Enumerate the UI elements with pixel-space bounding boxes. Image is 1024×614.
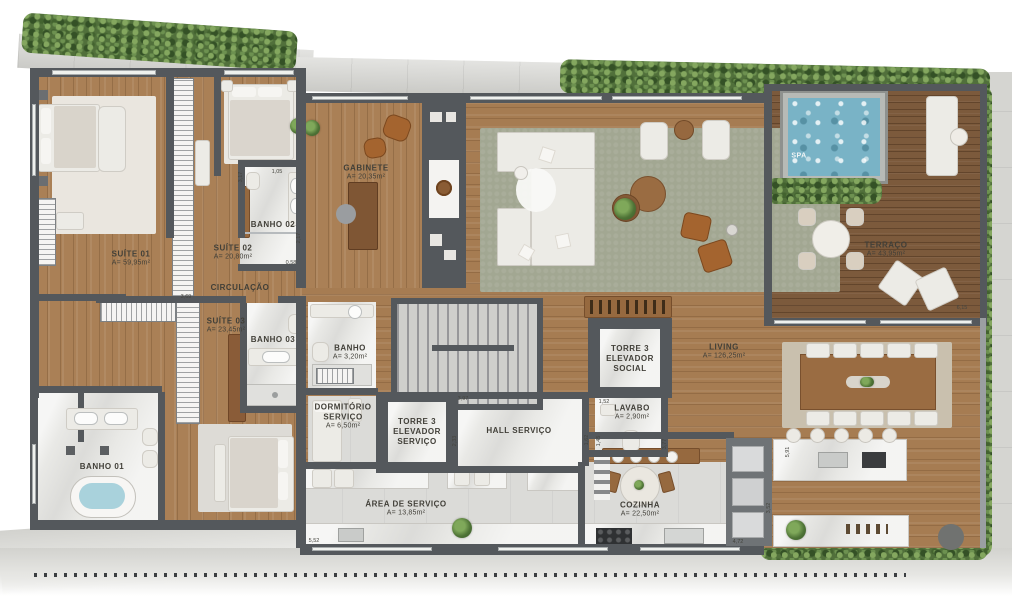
island-stool-4 [858,428,873,443]
island-stool-1 [786,428,801,443]
suite02-pillow-1 [232,87,256,97]
living-armchair-right [702,120,730,160]
washer-2 [334,469,354,488]
dining-chair-t5 [914,343,938,358]
suite01-pillow-2 [41,138,51,164]
suite02-bed-duvet [230,100,290,156]
wall-banho01-right [158,392,165,528]
dining-chair-t1 [806,343,830,358]
label-lavabo: LAVABO A= 2,90m² [614,404,650,423]
banho-servico-rack [316,368,354,384]
window-gabinete-top [312,96,408,100]
wall-suite03-top-2 [278,296,306,303]
dim-5-52: 5,52 [309,538,320,544]
label-area-servico: ÁREA DE SERVIÇO A= 13,85m² [365,500,446,519]
dining-chair-t4 [887,343,911,358]
living-leather-chair-1 [680,211,713,242]
dim-3-77: 3,77 [662,439,668,450]
closet-bench [195,140,210,186]
island-stool-2 [810,428,825,443]
fireplace-shelf-item-3 [430,234,442,246]
window-suite01-top [52,70,156,75]
railing-balusters [34,573,906,577]
appliance-wall [726,438,772,546]
suite01-bed-duvet [54,106,96,168]
bar-bottles [590,300,666,314]
window-bottom-2 [498,547,608,551]
wall-lavabo-bottom [588,450,668,457]
floor-plan: SUÍTE 01 A= 59,95m² SUÍTE 02 A= 20,80m² … [0,0,1024,614]
wall-terrace-top [764,84,986,91]
wall-suite01-closet [166,68,174,238]
counter-bottles [846,524,888,534]
spa-pool [780,90,888,184]
fireplace-shelf-item-2 [446,112,456,122]
label-gabinete: GABINETE A= 20,35m² [343,164,388,183]
servico-sink [338,528,364,542]
window-living-top-2 [612,96,742,100]
sidewalk-top-mid [295,57,581,97]
island-stool-3 [834,428,849,443]
banho01-basin-2 [104,412,128,425]
window-suite02-top [224,70,294,75]
room-area: A= 3,20m² [333,354,367,363]
room-name: DORMITÓRIO SERVIÇO [315,403,372,422]
dining-chair-b1 [806,411,830,426]
spa-water [788,98,880,176]
label-banho-servico: BANHO A= 3,20m² [333,344,367,363]
banho01-bidet [142,450,158,468]
label-cozinha: COZINHA A= 22,50m² [620,501,660,520]
room-name: BANHO [334,344,366,353]
terrace-chair-3 [798,252,816,270]
terrace-lounger-table [950,128,968,146]
living-floor-lamp [726,224,738,236]
dim-6-15: 6,15 [957,305,968,311]
room-area: A= 20,80m² [214,254,253,263]
dining-chair-b2 [833,411,857,426]
room-name: TORRE 3 ELEVADOR SERVIÇO [393,417,441,446]
room-name: CIRCULAÇÃO [211,283,270,292]
terrace-table [812,220,850,258]
appliance-panel-2 [732,478,764,506]
label-banho01: BANHO 01 [80,462,124,472]
room-area: A= 20,35m² [343,174,388,183]
suite01-console [56,212,84,230]
window-bottom-3 [640,547,740,551]
label-suite03: SUÍTE 03 A= 23,45m² [207,317,246,336]
dim-1-52: 1,52 [599,399,610,405]
label-living: LIVING A= 126,25m² [703,343,745,362]
label-dormitorio-servico: DORMITÓRIO SERVIÇO A= 6,50m² [314,403,372,432]
room-name: SUÍTE 01 [112,250,151,259]
room-name: LAVABO [614,404,650,413]
room-area: A= 13,85m² [365,510,446,519]
side-table-gray [938,524,964,550]
label-circulacao: CIRCULAÇÃO [211,283,270,293]
dining-chair-b5 [914,411,938,426]
suite03-bed-duvet [230,438,278,508]
closet-wardrobe [172,78,194,302]
gabinete-plant [304,120,320,136]
room-name: GABINETE [343,164,388,173]
cozinha-double-sink [664,528,704,544]
label-spa: SPA [791,153,806,162]
wall-servico-cozinha [578,462,585,548]
suite01-pillow-1 [41,108,51,134]
staircase-rail [432,345,514,351]
label-terraco: TERRAÇO A= 43,95m² [864,241,907,260]
label-banho03: BANHO 03 [251,335,295,345]
cozinha-table-plant [634,480,644,490]
wall-hall-bottom [376,466,582,473]
living-side-table [674,120,694,140]
wall-wing-bottom [30,520,304,530]
suite03-pillow-1 [278,440,288,468]
wall-terrace-right [980,84,987,326]
dim-2-17: 2,17 [296,233,302,244]
room-name: COZINHA [620,501,660,510]
room-name: TORRE 3 ELEVADOR SOCIAL [606,344,654,373]
suite02-pillow-2 [258,87,282,97]
banho01-stool-2 [100,446,109,455]
cozinha-appliance-tower [592,452,612,502]
wall-closet-suite02 [214,68,221,176]
room-name: TERRAÇO [864,241,907,250]
window-terrace-2 [880,320,972,324]
suite03-wardrobe-side [176,300,200,424]
fireplace-wall [422,98,466,288]
wall-glass-right [980,318,986,548]
label-suite02: SUÍTE 02 A= 20,80m² [214,244,253,263]
banho01-basin-1 [74,412,98,425]
fireplace-shelf-item-4 [444,250,456,260]
room-area: A= 43,95m² [864,251,907,260]
suite03-wardrobe-top [100,300,176,322]
dim-3-97: 3,97 [458,396,469,402]
wall-cozinha-top [585,432,734,439]
terrace-chair-4 [846,252,864,270]
room-area: A= 6,50m² [314,423,372,432]
banho03-drain [272,392,278,398]
wall-banho03-bottom [240,406,306,413]
wall-hall-top [458,392,588,399]
wall-banho-servico-bottom [306,388,378,395]
label-hall-servico: HALL SERVIÇO [486,426,551,436]
gabinete-desk-chair [336,204,356,224]
banho01-tub-water [79,483,125,509]
dim-0-58: 0,58 [286,260,297,266]
wall-suite03-top-1 [96,296,246,303]
window-terrace-1 [774,320,866,324]
room-name: ÁREA DE SERVIÇO [365,500,446,509]
suite01-sofa [98,106,126,172]
servico-plant [452,518,472,538]
window-living-top-1 [470,96,602,100]
servico-basket-2 [474,471,490,486]
banho03-basin [262,351,290,363]
room-area: A= 22,50m² [620,511,660,520]
fireplace-logs [436,180,452,196]
label-elevador-social: TORRE 3 ELEVADOR SOCIAL [601,344,659,374]
dining-chair-b4 [887,411,911,426]
suite03-pillow-2 [278,472,288,500]
dim-5-91: 5,91 [785,447,791,458]
terrace-chair-1 [798,208,816,226]
room-area: A= 2,90m² [614,414,650,423]
room-area: A= 59,95m² [112,260,151,269]
dim-3-52: 3,52 [766,503,772,514]
dim-4-72: 4,72 [733,539,744,545]
cozinha-cooktop [596,528,632,544]
island-sink [818,452,848,468]
room-name: HALL SERVIÇO [486,426,551,435]
hedge-terrace-planter [766,178,882,204]
room-name: BANHO 02 [251,220,295,229]
dining-chair-t2 [833,343,857,358]
room-area: A= 23,45m² [207,327,246,336]
living-cushion-2 [555,233,572,250]
terrace-chair-2 [846,208,864,226]
banho02-toilet [246,172,260,190]
living-plant [614,198,636,220]
wall-dormitorio-bottom [306,462,378,469]
dining-chair-t3 [860,343,884,358]
dim-2-33: 2,33 [452,436,458,447]
suite02-nightstand-left [221,80,233,92]
window-bottom-1 [312,547,432,551]
banho-servico-counter [310,304,374,318]
room-name: LIVING [709,343,739,352]
suite01-wardrobe [36,198,56,266]
washer-1 [312,469,332,488]
dim-1-05: 1,05 [272,169,283,175]
appliance-panel-1 [732,446,764,472]
room-name: SPA [791,153,806,160]
dining-chair-b3 [860,411,884,426]
room-name: SUÍTE 03 [207,317,246,326]
suite03-bench [214,444,226,502]
living-armchair-left [640,122,668,160]
room-name: BANHO 01 [80,462,124,471]
dim-3-69: 3,69 [181,294,192,300]
label-banho02: BANHO 02 [251,220,295,230]
wall-terrace-left [764,84,772,326]
banho-servico-sink [348,305,362,319]
wall-banho01-top [38,386,162,393]
servico-basket-1 [454,471,470,486]
room-name: SUÍTE 02 [214,244,253,253]
island-cooktop [862,452,886,468]
dim-1-45: 1,45 [596,436,602,447]
fireplace-shelf-item-1 [430,112,442,122]
banho01-toilet [142,428,158,446]
dining-centerpiece-plant [860,377,874,387]
window-left-banho01 [32,444,36,504]
label-elevador-servico: TORRE 3 ELEVADOR SERVIÇO [388,417,446,447]
wall-banho02-top [238,160,306,167]
banho01-stool-1 [66,446,75,455]
window-left-suite01 [32,104,36,176]
dim-3-17: 3,17 [238,172,244,183]
label-suite01: SUÍTE 01 A= 59,95m² [112,250,151,269]
room-area: A= 126,25m² [703,353,745,362]
wall-wing-right-lower [296,296,306,548]
dim-1-62: 1,62 [584,435,590,446]
banho-servico-toilet [312,342,329,362]
room-name: BANHO 03 [251,335,295,344]
living-side-lamp [514,166,528,180]
counter-plant [786,520,806,540]
appliance-panel-3 [732,512,764,538]
banho02-shower-glass [240,232,304,234]
island-stool-5 [882,428,897,443]
